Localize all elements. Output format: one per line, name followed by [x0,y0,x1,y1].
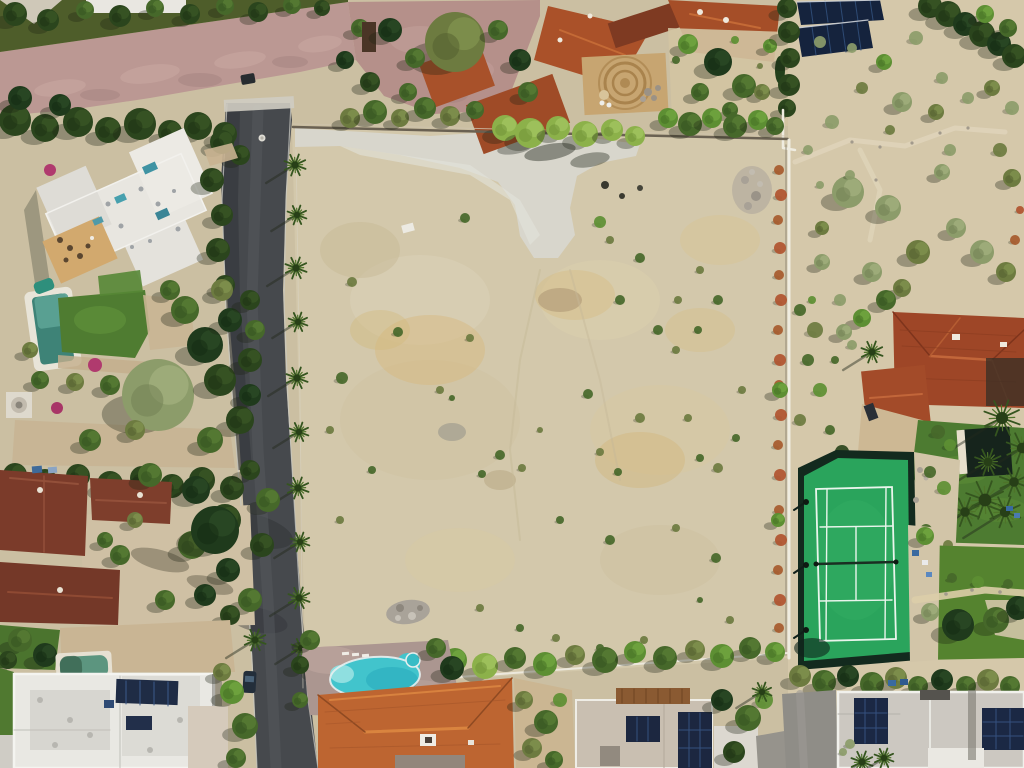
shrub [596,448,604,456]
chimney [37,487,43,493]
circle [177,717,183,723]
tree-shade [316,6,323,13]
patio-umbrella [599,90,609,100]
tree-shade [604,127,614,137]
tree-shade [223,688,234,699]
circle [619,193,625,199]
tree-shade [756,90,763,97]
shrub [774,270,784,280]
circle [741,176,749,184]
shrub [449,395,455,401]
palm-tree [293,374,300,381]
tree-shade [366,108,377,119]
circle [130,245,134,249]
bougainvillea [44,164,56,176]
yellow-soil-patch [595,432,685,488]
palm-tree [868,348,875,355]
rooftop-solar-array [678,712,712,768]
tree-shade [781,82,791,92]
chimney [57,587,63,593]
tree-shade [681,120,692,131]
tree-shade [627,649,637,659]
shrub [653,325,663,335]
tree-shade [956,20,967,31]
circle [86,244,91,249]
tree-shade [208,375,222,389]
tree-shade [67,118,81,132]
tree-shade [6,10,17,21]
tree-shade [895,99,904,108]
tree-shade [495,124,507,136]
tree-shade [338,57,346,65]
tree-shade [780,105,788,113]
circle [172,189,176,193]
court-light [803,627,809,633]
shrub [713,463,723,473]
circle [644,88,652,96]
circle [106,202,111,207]
tree-shade [774,388,781,395]
tree-shade [879,297,888,306]
tree-shade [708,58,721,71]
tree-shade [433,33,460,60]
tree-shade [878,204,890,216]
large-palm-cluster [979,494,992,507]
tree-shade [536,660,547,671]
shrub [713,295,723,305]
tree-shade [285,2,293,10]
shrub [813,383,827,397]
tree-shade [781,29,791,39]
shrub [947,573,957,583]
shrub [803,145,813,155]
circle [850,140,853,143]
tree-shade [429,645,438,654]
shrub [556,516,564,524]
dark-roof-band [920,690,950,700]
shrub [696,454,704,462]
pool-toys [32,466,43,474]
shrub [635,253,645,263]
shrub [909,31,923,45]
tree-shade [934,677,944,687]
tree-shade [293,662,301,670]
ellipse [794,638,830,658]
palm-tree [296,429,302,435]
tree-shade [248,327,257,336]
tree-shade [547,757,555,765]
rooftop-solar-array [854,698,888,744]
shrub [552,634,560,642]
circle [757,181,763,187]
tree-shade [738,714,750,726]
shrub [831,356,839,364]
shrub [674,296,682,304]
shrub [460,213,470,223]
shrub [794,414,806,426]
shrub [1005,101,1019,115]
tree-shade [401,89,409,97]
tree-shade [990,40,1001,51]
dark-stain [438,423,466,441]
tree-shade [223,484,234,495]
tree-shade [792,673,802,683]
net-post [894,560,899,565]
tree-shade [783,55,792,64]
tree-shade [918,533,926,541]
tree-shade [129,518,136,525]
tree-shade [693,89,701,97]
circle [917,467,923,473]
shrub [684,414,692,422]
shrub [814,36,826,48]
ellipse [320,222,400,278]
tree-shade [52,102,62,112]
tree-shade [294,698,301,705]
pool-steps [330,665,354,683]
pool-float [1014,513,1020,518]
circle [913,497,919,503]
tree-shade [773,518,779,524]
tree-shade [3,115,17,129]
circle [37,697,43,703]
covered-terrace [986,358,1024,406]
palm-tree [960,507,970,517]
tree-shade [223,612,232,621]
tree-shade [1003,683,1012,692]
shrub [774,469,786,481]
circle [67,245,73,251]
tree-shade [628,133,637,142]
tree-shade [343,115,352,124]
shrub [697,597,703,603]
tree-shade [11,636,22,647]
tree-shade [517,697,525,705]
tree-shade [99,538,106,545]
tree-shade [112,13,122,23]
palm-tree [858,758,865,765]
tree-shade [855,315,863,323]
tree-shade [816,260,823,267]
shrub [773,440,783,450]
shrub [834,294,846,306]
tree-shade [33,377,41,385]
tree-shade [186,486,199,499]
circle [938,131,941,134]
ellipse [600,525,720,595]
palm-tree [297,539,303,545]
tree-shade [175,306,188,319]
ellipse [484,470,516,490]
ellipse [80,89,120,101]
circle [87,732,93,738]
lounger [362,654,369,658]
tree-shade [519,129,533,143]
tree-shade [838,330,845,337]
tree-shade [128,427,137,436]
tree-shade [215,669,223,677]
tree-shade [1001,25,1009,33]
tree-shade [661,115,670,124]
tree-shade [681,41,690,50]
tree-shade [241,596,252,607]
tree-shade [68,379,76,387]
shrub [1003,579,1013,589]
tree-shade [817,226,823,232]
tree-shade [491,27,500,36]
tree-shade [381,26,392,37]
shrub [726,616,734,624]
tree-shade [525,745,534,754]
tree-shade [230,416,243,429]
tree-shade [443,664,454,675]
tree-shade [141,471,152,482]
tree-shade [1005,52,1016,63]
circle [558,38,563,43]
tree-shade [221,316,232,327]
chimney [952,334,960,340]
tree-shade [742,645,752,655]
shrub [640,636,648,644]
tree-shade [980,677,990,687]
shrub [845,170,855,180]
circle [156,202,161,207]
circle [655,85,661,91]
patio [395,755,465,768]
shrub [1010,235,1020,245]
tree-shade [986,616,998,628]
courtyard-shadow [600,746,620,766]
shrub [802,354,814,366]
shrub [937,481,951,495]
tree-shade [930,110,937,117]
tree-shade [78,7,86,15]
shrub [773,325,783,335]
tree-shade [468,107,476,115]
ellipse [74,306,126,334]
tree-shade [393,115,401,123]
rect [48,467,57,474]
tree-shade [549,124,560,135]
tree-shade [999,269,1008,278]
tree-shade [865,269,874,278]
rect [425,737,432,743]
tree-shade [98,126,110,138]
shrub [476,604,484,612]
tree-shade [475,662,487,674]
shrub [773,565,783,575]
shrub [845,739,855,749]
shrub [972,576,984,588]
shrub [774,594,786,606]
pool-float [1006,506,1013,511]
tree-shade [82,437,92,447]
tree-shade [507,655,517,665]
circle [52,742,58,748]
lounger [352,653,359,657]
shrub [336,372,348,384]
tree-shade [197,523,219,545]
shrub [807,322,823,338]
tree-shade [863,680,874,691]
pergola [616,688,690,704]
circle [396,604,404,612]
circle [395,615,401,621]
driveway-gray [782,690,838,768]
tree-shade [209,246,220,257]
tree-shade [688,647,697,656]
shrub [931,425,945,439]
tree-shade [36,651,47,662]
circle [176,227,181,232]
shrub [839,748,847,756]
shrub [583,389,593,399]
rect [926,572,932,577]
circle [744,202,752,210]
rooftop-unit [900,679,908,685]
tree-shade [24,348,31,355]
tree-shade [229,755,238,764]
tree-shade [103,382,112,391]
shrub [794,304,806,316]
tree-shade [188,122,201,135]
tree-shade [443,113,452,122]
tree-shade [921,2,932,13]
tree-shade [768,123,776,131]
court-light [803,499,809,505]
circle [640,96,646,102]
tree-shade [726,122,737,133]
shrub [606,236,614,244]
chimney [137,492,143,498]
tree-shade [1005,175,1013,183]
play-equipment [912,550,919,556]
shrub [924,466,936,478]
tree-shade [417,105,427,115]
circle [119,224,124,229]
shrub [936,72,948,84]
shrub [847,43,857,53]
tree-shade [521,89,530,98]
shrub [775,534,787,546]
shrub [944,439,956,451]
shrub [672,346,680,354]
shrub [436,386,444,394]
shrub [614,468,622,476]
tree-shade [1009,604,1020,615]
tree-shade [251,9,260,18]
tree-shade [219,566,230,577]
tree-shade [203,176,214,187]
palm-tree [291,161,298,168]
ellipse [178,73,222,87]
shrub [885,125,895,135]
palm-tree [996,412,1008,424]
tree-shade [735,82,746,93]
shrub [825,115,839,129]
tree-shade [113,552,122,561]
circle [878,145,881,148]
net-post [814,562,819,567]
circle [970,588,974,592]
chimney [1000,342,1007,347]
palm-tree [295,319,301,325]
screenshot-root [0,0,1024,768]
tree-shade [815,678,826,689]
shrub [774,623,784,633]
circle [148,239,152,243]
tree-shade [949,225,958,234]
tree-shade [1,657,9,665]
shrub [816,181,824,189]
shrub [696,266,704,274]
shrub [856,82,868,94]
shrub [516,624,524,632]
bougainvillea [51,402,63,414]
shrub [672,56,680,64]
shrub [605,535,615,545]
palm-tree [294,212,300,218]
tree-shade [751,117,760,126]
shrub [672,524,680,532]
polyline [800,694,804,768]
rooftop-solar-array [626,716,660,742]
tree-shade [353,25,361,33]
circle [751,191,761,201]
rect [104,700,114,708]
tree-shade [726,749,736,759]
rect [468,740,474,745]
tree-shade [131,384,163,416]
tree-shade [936,170,943,177]
tree-shade [959,683,968,692]
tree-shade [192,340,208,356]
circle [16,402,23,409]
shrub [731,36,739,44]
shrub [495,450,505,460]
tree-shade [11,94,22,105]
circle [651,95,657,101]
shrub [336,516,344,524]
shrub [347,277,357,287]
shrub [774,242,786,254]
circle [998,590,1002,594]
court-light [803,562,809,568]
tree-shade [183,11,192,20]
circle [620,78,630,88]
circle [944,592,948,596]
circle [417,605,423,611]
tree-shade [568,652,577,661]
palm-tree [292,264,299,271]
shrub [775,189,787,201]
tree-shade [214,212,224,222]
rooftop-solar-array [126,716,152,730]
circle [64,258,69,263]
tree-shade [986,86,993,93]
tree-shade [303,637,312,646]
shrub [466,334,474,342]
tree-shade [765,44,771,50]
yellow-soil-patch [680,215,760,265]
palm-tree [295,594,302,601]
shrub [944,144,956,156]
circle [749,169,755,175]
tree-shade [946,620,960,634]
circle [966,126,969,129]
tree-shade [972,30,984,42]
shrub [732,434,740,442]
